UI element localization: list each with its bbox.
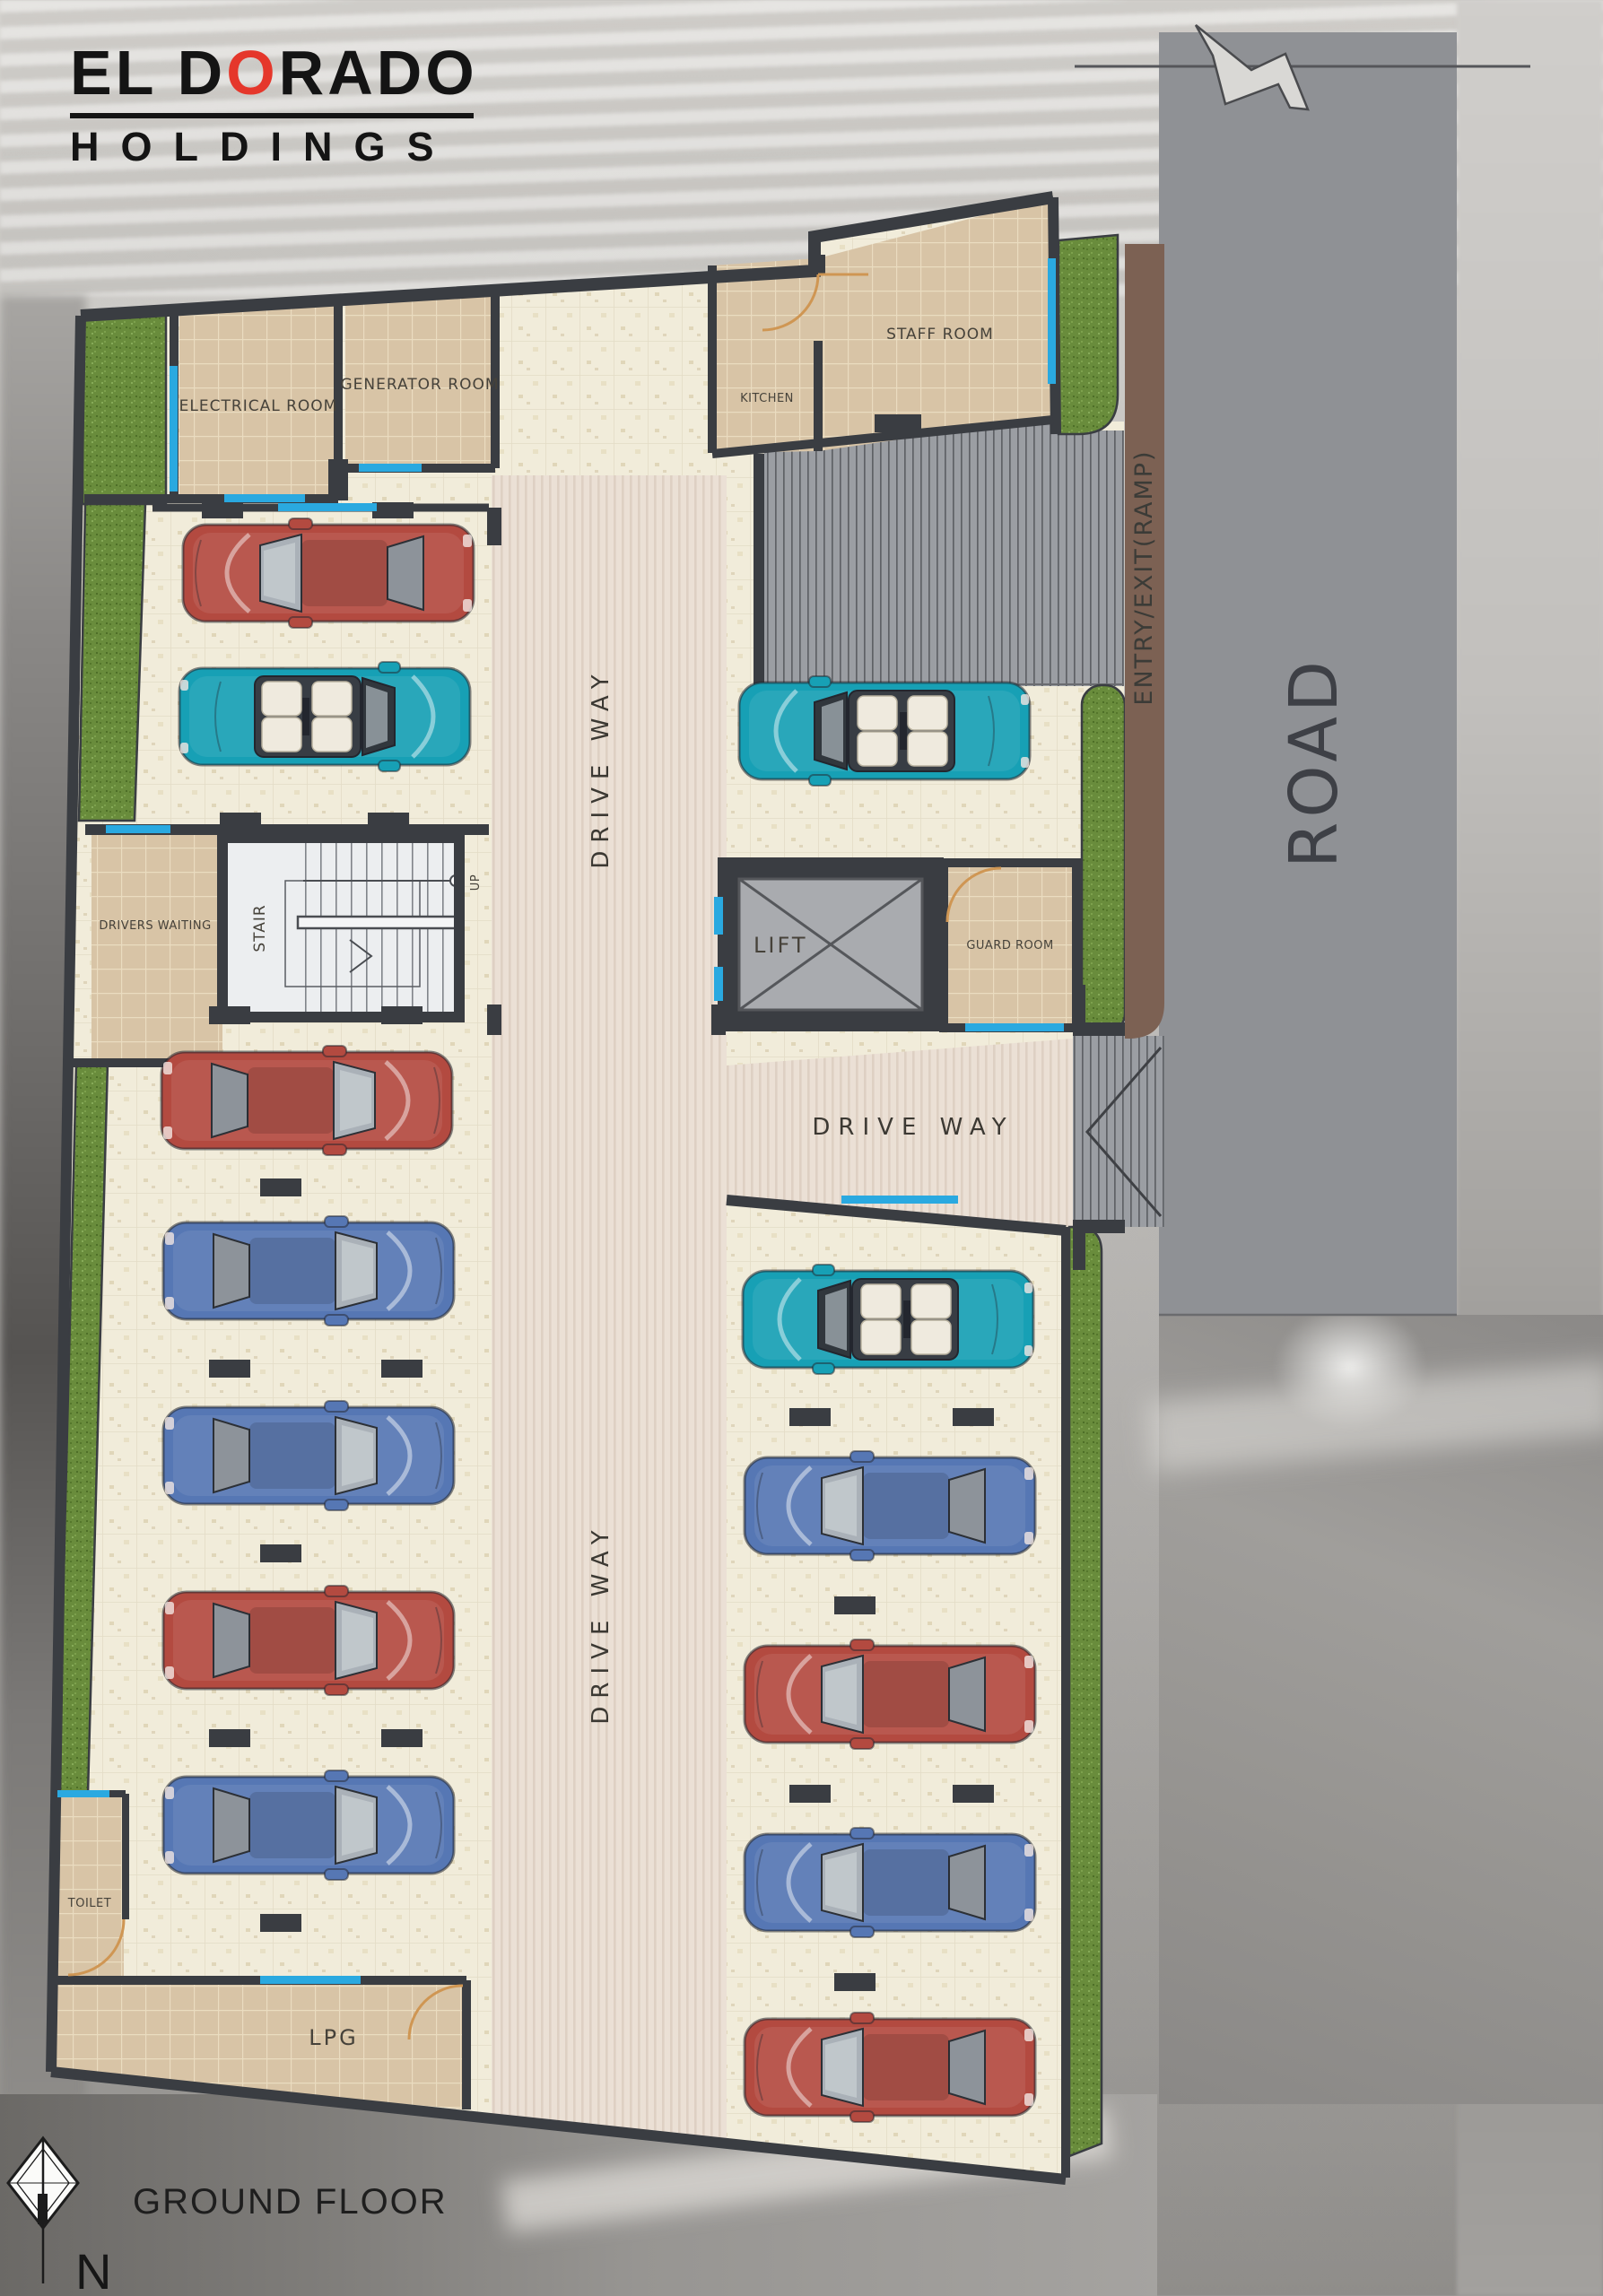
stair-rail (298, 917, 456, 928)
label-entry-exit-ramp: ENTRY/EXIT(RAMP) (1130, 449, 1158, 705)
car-blue-7 (163, 1770, 454, 1880)
lift-door-blue-2 (714, 967, 723, 1001)
car-blue-4 (163, 1216, 454, 1326)
north-letter: N (75, 2243, 111, 2296)
car-red-6 (163, 1586, 454, 1695)
room-drivers-waiting (91, 834, 222, 1063)
wall-divider-stub (811, 255, 825, 274)
car-red-13 (745, 2013, 1035, 2122)
label-driveway-vertical-1: DRIVE WAY (588, 666, 614, 868)
label-drivers-waiting: DRIVERS WAITING (99, 919, 211, 933)
lift-block (714, 857, 944, 1031)
label-up: UP (469, 874, 483, 891)
ramp-area (764, 420, 1124, 686)
room-kitchen (712, 258, 818, 453)
label-kitchen: KITCHEN (740, 392, 794, 405)
grass-right-top (1059, 235, 1118, 434)
wall-entry-stub-top-v (1073, 985, 1085, 1036)
entry-apron (1073, 1036, 1164, 1227)
north-arrow (8, 2138, 78, 2283)
wall-step (328, 459, 348, 500)
car-blue-10 (745, 1451, 1035, 1561)
car-blue-5 (163, 1401, 454, 1510)
label-guard-room: GUARD ROOM (966, 939, 1053, 952)
car-teal-8 (739, 676, 1030, 786)
label-generator-room: GENERATOR ROOM (340, 376, 499, 394)
car-blue-12 (745, 1828, 1035, 1937)
car-teal-2 (179, 662, 470, 771)
wall-entry-stub-bot-v (1073, 1220, 1085, 1270)
label-driveway-horizontal: DRIVE WAY (812, 1114, 1014, 1141)
page-title: GROUND FLOOR (133, 2182, 448, 2222)
label-lift: LIFT (754, 933, 808, 958)
wall-ramp-stub (875, 414, 921, 432)
page: { "brand": { "name_pre": "EL D", "name_a… (0, 0, 1603, 2296)
footer: N GROUND FLOOR (8, 2138, 448, 2296)
grass-right-low (1069, 1227, 1102, 2156)
label-stair: STAIR (251, 904, 269, 952)
floor-plan-drawing: ROAD (0, 0, 1603, 2296)
car-teal-9 (743, 1265, 1033, 1374)
label-staff-room: STAFF ROOM (886, 326, 994, 344)
label-toilet: TOILET (67, 1897, 111, 1910)
grass-right-mid (1082, 685, 1125, 1033)
label-lpg: LPG (309, 2025, 358, 2050)
lift-door-blue-1 (714, 897, 723, 935)
road-label: ROAD (1276, 657, 1353, 868)
car-red-11 (745, 1639, 1035, 1749)
grass-left-top (83, 307, 166, 504)
grass-left-mid (79, 504, 145, 821)
label-driveway-vertical-2: DRIVE WAY (588, 1522, 614, 1724)
label-electrical-room: ELECTRICAL ROOM (179, 397, 338, 415)
car-red-1 (183, 518, 474, 628)
car-red-3 (161, 1046, 452, 1155)
